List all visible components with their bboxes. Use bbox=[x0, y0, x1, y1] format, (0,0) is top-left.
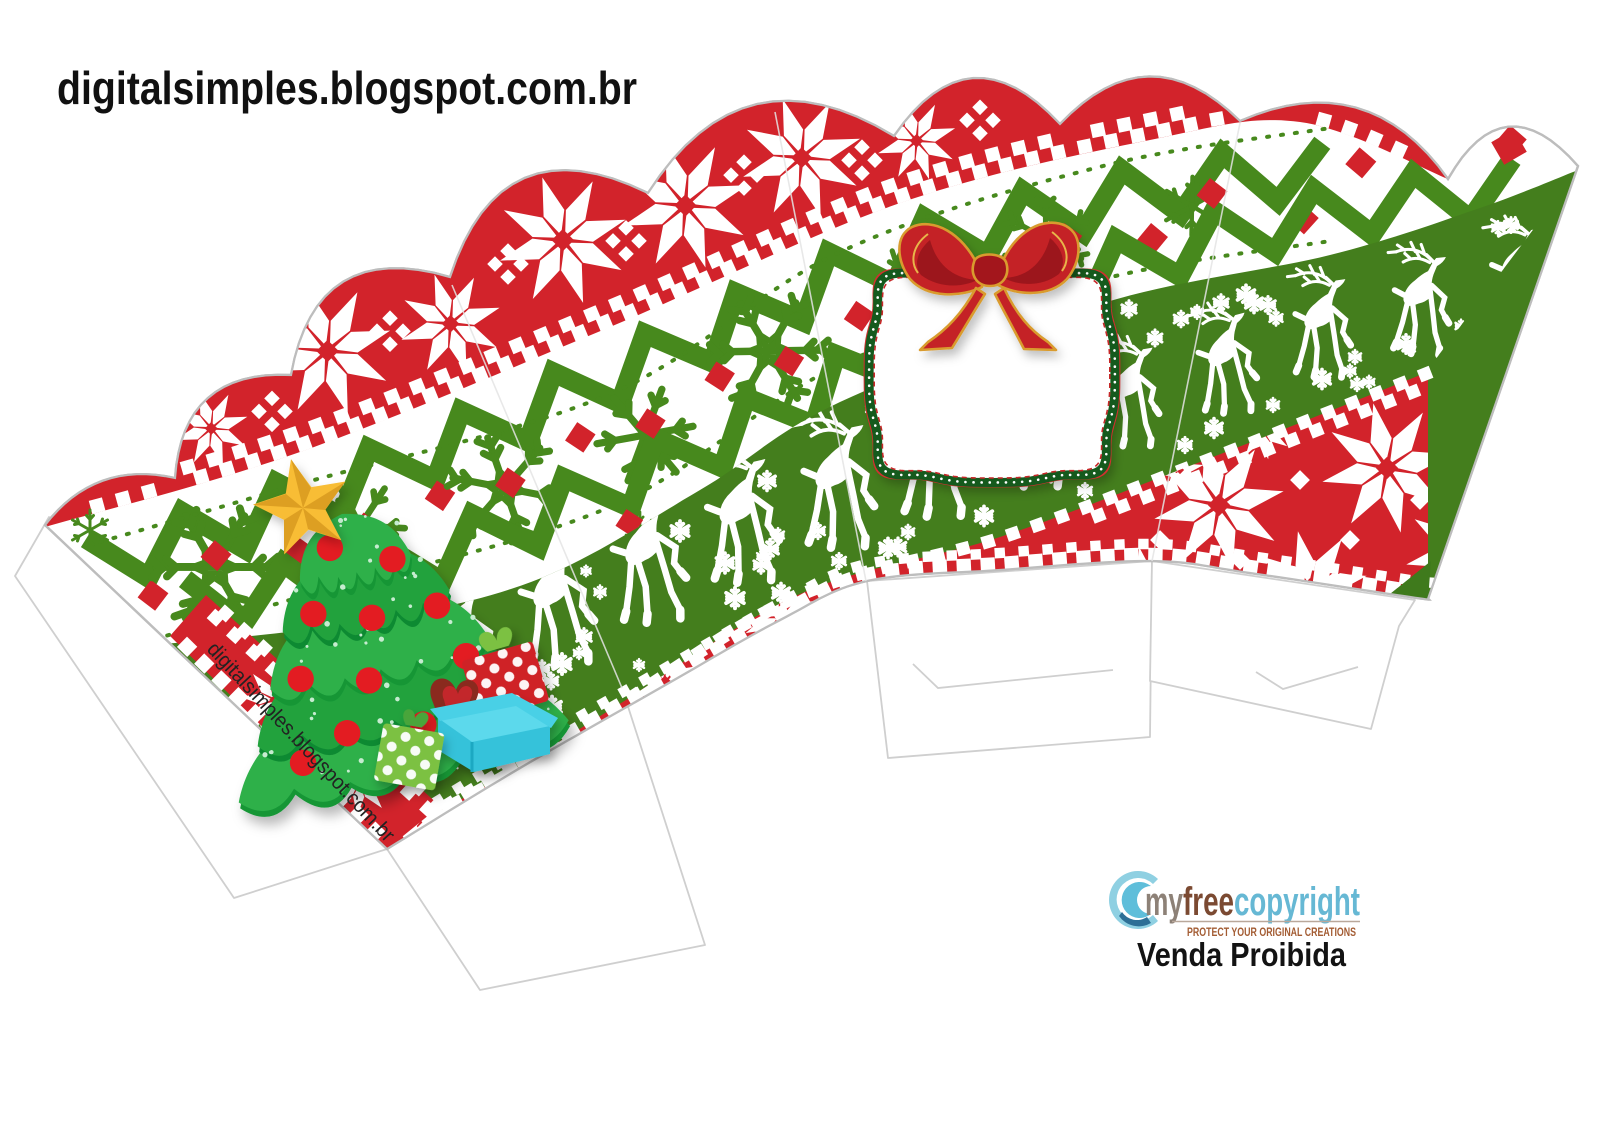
svg-text:Venda Proibida: Venda Proibida bbox=[1137, 936, 1347, 973]
svg-text:digitalsimples.blogspot.com.br: digitalsimples.blogspot.com.br bbox=[57, 62, 637, 114]
svg-text:myfreecopyright: myfreecopyright bbox=[1145, 880, 1360, 924]
